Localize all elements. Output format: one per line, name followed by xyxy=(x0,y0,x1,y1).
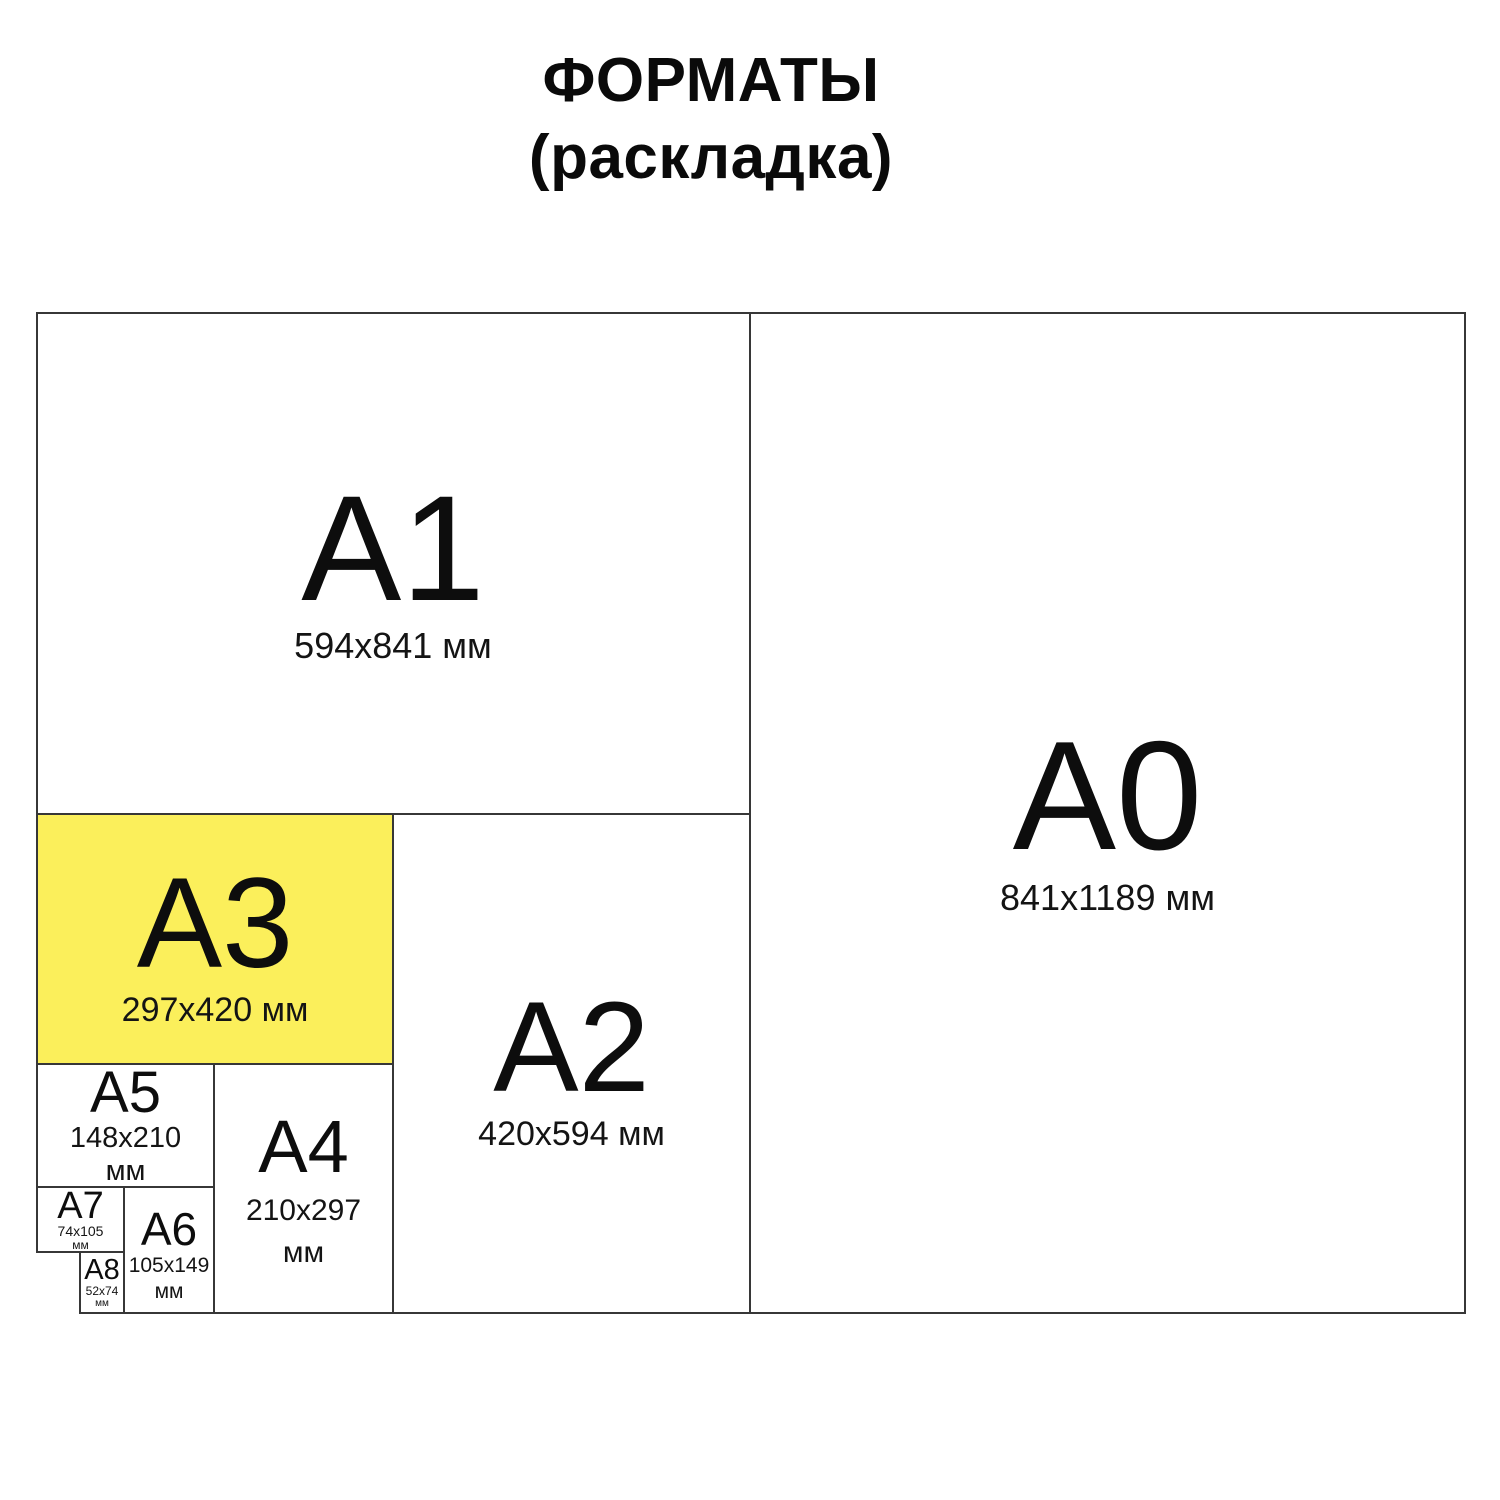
paper-a2: A2 420x594 мм xyxy=(394,815,749,1312)
page-title-line-1: ФОРМАТЫ xyxy=(311,42,1111,119)
paper-a2-label: A2 xyxy=(493,984,650,1112)
paper-a4: A4 210x297 мм xyxy=(215,1065,392,1312)
paper-a3-size: 297x420 мм xyxy=(122,988,309,1032)
divider-a5-a4 xyxy=(213,1063,215,1314)
paper-a1-size: 594x841 мм xyxy=(294,623,492,669)
paper-a7-label: A7 xyxy=(57,1188,103,1224)
paper-a3-label: A3 xyxy=(137,860,294,988)
paper-a8: A8 52x74 мм xyxy=(81,1253,123,1312)
paper-a3: A3 297x420 мм xyxy=(38,815,392,1063)
paper-a7-size-line2: мм xyxy=(72,1239,89,1252)
paper-a8-label: A8 xyxy=(84,1256,119,1284)
border-right xyxy=(1464,312,1466,1314)
paper-a8-size-line2: мм xyxy=(95,1298,109,1310)
border-top xyxy=(36,312,1466,314)
border-left xyxy=(36,312,38,1253)
formats-diagram: ФОРМАТЫ (раскладка) A1 594x841 мм A0 841… xyxy=(0,0,1500,1500)
paper-a6-size-line2: мм xyxy=(155,1279,184,1305)
paper-a0-size: 841x1189 мм xyxy=(1000,875,1215,921)
divider-a7-a6 xyxy=(123,1186,125,1314)
paper-a1-label: A1 xyxy=(301,473,484,623)
paper-a6-size-line1: 105x149 xyxy=(129,1253,210,1279)
page-title-line-2: (раскладка) xyxy=(311,119,1111,196)
paper-a5-size-line2: мм xyxy=(106,1155,146,1188)
paper-a0: A0 841x1189 мм xyxy=(751,314,1464,1312)
border-bottom xyxy=(79,1312,1466,1314)
paper-a4-label: A4 xyxy=(258,1104,349,1190)
paper-a5: A5 148x210 мм xyxy=(38,1065,213,1186)
paper-a8-size-line1: 52x74 xyxy=(86,1284,119,1298)
divider-a3-a2 xyxy=(392,813,394,1314)
paper-a4-size-line1: 210x297 xyxy=(246,1190,361,1232)
paper-a4-size-line2: мм xyxy=(283,1232,324,1274)
paper-a2-size: 420x594 мм xyxy=(478,1112,665,1156)
divider-a1-a0 xyxy=(749,312,751,1314)
line-a8-left xyxy=(79,1251,81,1314)
paper-a5-label: A5 xyxy=(90,1064,161,1122)
paper-a7: A7 74x105 мм xyxy=(38,1188,123,1251)
paper-a7-size-line1: 74x105 xyxy=(58,1224,104,1239)
paper-a0-label: A0 xyxy=(1013,717,1203,875)
paper-a1: A1 594x841 мм xyxy=(37,314,749,813)
line-a3-bottom xyxy=(36,1063,394,1065)
line-a5-bottom xyxy=(36,1186,215,1188)
paper-a6: A6 105x149 мм xyxy=(125,1188,213,1312)
page-title: ФОРМАТЫ (раскладка) xyxy=(311,42,1111,196)
paper-a5-size-line1: 148x210 xyxy=(70,1122,181,1155)
paper-a6-label: A6 xyxy=(141,1205,197,1253)
